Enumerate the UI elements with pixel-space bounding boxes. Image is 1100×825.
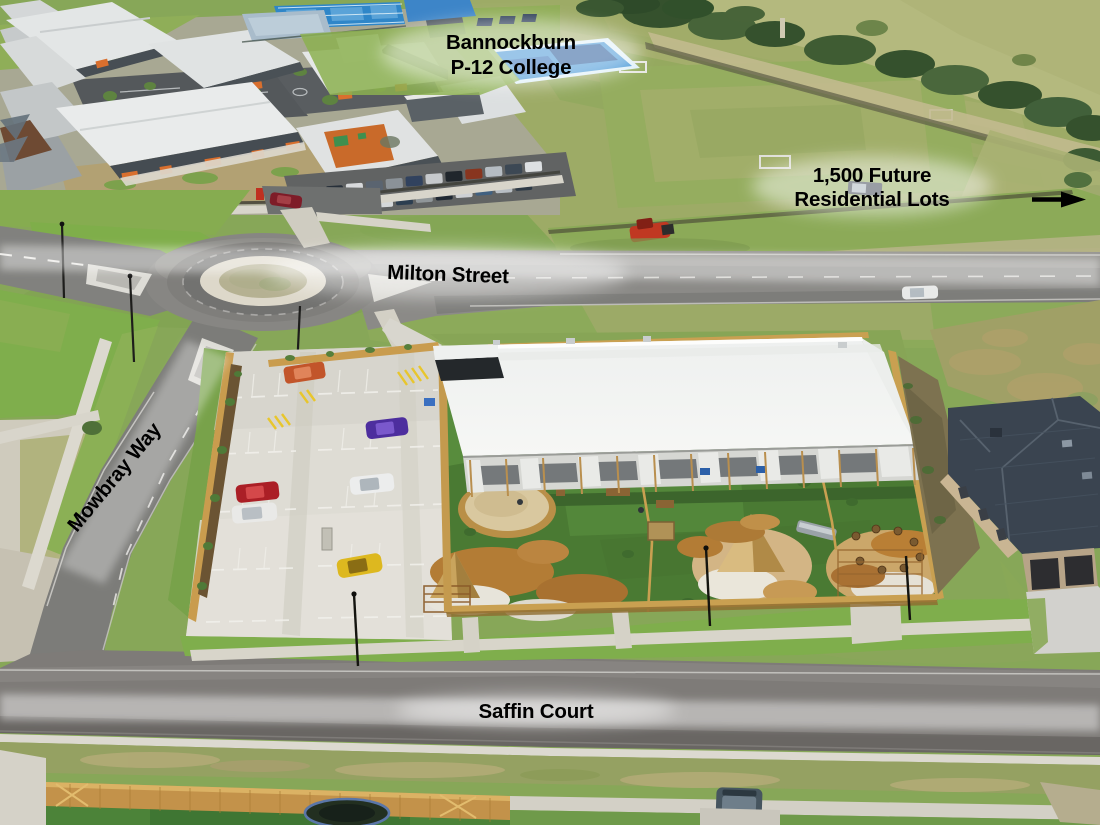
svg-text:Milton Street: Milton Street bbox=[387, 261, 510, 288]
svg-text:Bannockburn: Bannockburn bbox=[446, 31, 576, 54]
svg-text:Saffin Court: Saffin Court bbox=[479, 700, 594, 723]
svg-text:P-12 College: P-12 College bbox=[451, 56, 572, 79]
svg-text:Residential Lots: Residential Lots bbox=[794, 188, 949, 211]
svg-text:1,500 Future: 1,500 Future bbox=[813, 164, 931, 187]
